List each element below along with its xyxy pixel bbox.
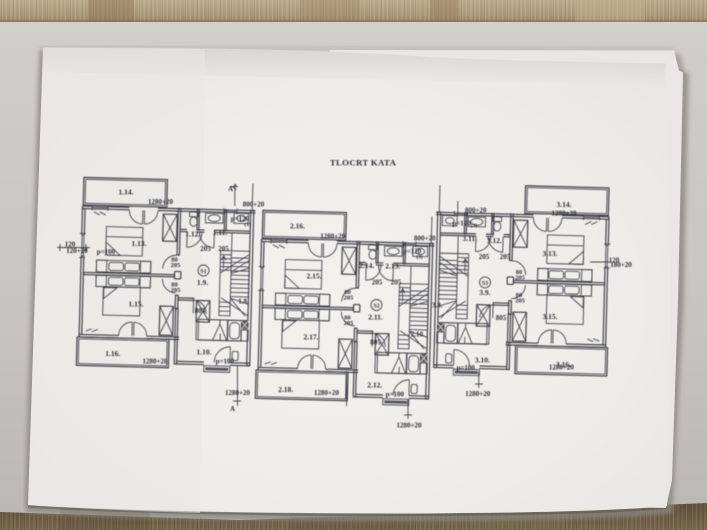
svg-text:205: 205 (344, 320, 355, 327)
svg-text:205: 205 (500, 253, 511, 261)
svg-text:3.9.: 3.9. (479, 288, 490, 297)
svg-text:205: 205 (515, 275, 526, 282)
svg-text:805: 805 (195, 307, 206, 315)
svg-text:205: 205 (391, 279, 402, 287)
svg-text:(3): (3) (416, 254, 423, 261)
svg-text:800+20: 800+20 (243, 201, 265, 209)
svg-text:1280+20: 1280+20 (314, 389, 339, 397)
svg-text:205: 205 (515, 298, 526, 305)
svg-text:2.12.: 2.12. (367, 381, 382, 390)
svg-text:S2: S2 (373, 304, 379, 310)
svg-text:3.14.: 3.14. (557, 200, 572, 209)
svg-text:TLOCRT KATA: TLOCRT KATA (330, 158, 397, 168)
svg-text:3.10.: 3.10. (475, 356, 490, 365)
svg-text:1280+20: 1280+20 (225, 389, 250, 397)
svg-text:1.11.: 1.11. (213, 228, 228, 237)
svg-text:p=100: p=100 (457, 364, 476, 372)
svg-text:p=120: p=120 (452, 220, 471, 228)
svg-text:S3: S3 (482, 281, 488, 287)
svg-text:3.8.: 3.8. (432, 301, 443, 309)
svg-text:1.12.: 1.12. (185, 230, 200, 239)
svg-text:p=100: p=100 (216, 358, 235, 366)
svg-text:3.15.: 3.15. (543, 312, 558, 321)
svg-text:3.12.: 3.12. (487, 236, 502, 245)
svg-text:1.9.: 1.9. (197, 278, 208, 287)
svg-text:205: 205 (218, 245, 229, 253)
svg-text:1280+20: 1280+20 (549, 364, 574, 372)
svg-text:205: 205 (479, 253, 490, 261)
svg-text:S1: S1 (200, 269, 206, 275)
svg-text:(3): (3) (471, 222, 478, 229)
svg-text:1.8.: 1.8. (238, 298, 249, 306)
svg-text:805: 805 (370, 339, 381, 347)
svg-text:p=100: p=100 (386, 391, 405, 399)
svg-text:1.10.: 1.10. (197, 348, 212, 357)
svg-text:2.14.: 2.14. (359, 261, 374, 270)
svg-text:1280+20: 1280+20 (143, 358, 168, 366)
svg-text:A: A (228, 185, 233, 193)
svg-text:3.13.: 3.13. (543, 249, 558, 258)
svg-text:2.11.: 2.11. (368, 313, 383, 322)
svg-text:205: 205 (171, 262, 182, 269)
svg-text:800+20: 800+20 (465, 206, 487, 214)
svg-text:1.13.: 1.13. (132, 239, 147, 248)
svg-text:1.14.: 1.14. (119, 188, 134, 197)
svg-text:A: A (230, 405, 235, 413)
svg-text:2.13.: 2.13. (385, 262, 400, 271)
svg-text:2.18.: 2.18. (278, 385, 293, 394)
svg-text:(3): (3) (244, 221, 251, 228)
svg-text:3.11.: 3.11. (462, 234, 477, 243)
svg-text:205: 205 (372, 279, 383, 287)
svg-text:2.16.: 2.16. (290, 222, 305, 231)
svg-text:1280+20: 1280+20 (465, 390, 490, 398)
svg-text:1280+20: 1280+20 (320, 232, 345, 240)
svg-text:2.17.: 2.17. (304, 333, 319, 342)
svg-text:120+20: 120+20 (66, 247, 88, 255)
svg-text:205: 205 (171, 287, 182, 294)
svg-text:1.16.: 1.16. (105, 349, 120, 358)
svg-text:1280+20: 1280+20 (552, 209, 577, 217)
svg-text:1280+20: 1280+20 (397, 422, 422, 430)
svg-text:805: 805 (496, 314, 507, 322)
svg-text:p=100: p=100 (97, 248, 116, 256)
svg-text:2.10.: 2.10. (411, 330, 425, 338)
svg-text:205: 205 (344, 295, 355, 302)
svg-text:205: 205 (200, 245, 211, 253)
svg-text:180+20: 180+20 (610, 261, 632, 269)
svg-text:1280+20: 1280+20 (148, 198, 173, 206)
svg-text:1.15.: 1.15. (129, 300, 144, 309)
svg-text:800+20: 800+20 (414, 235, 436, 243)
svg-text:2.15.: 2.15. (307, 272, 322, 281)
